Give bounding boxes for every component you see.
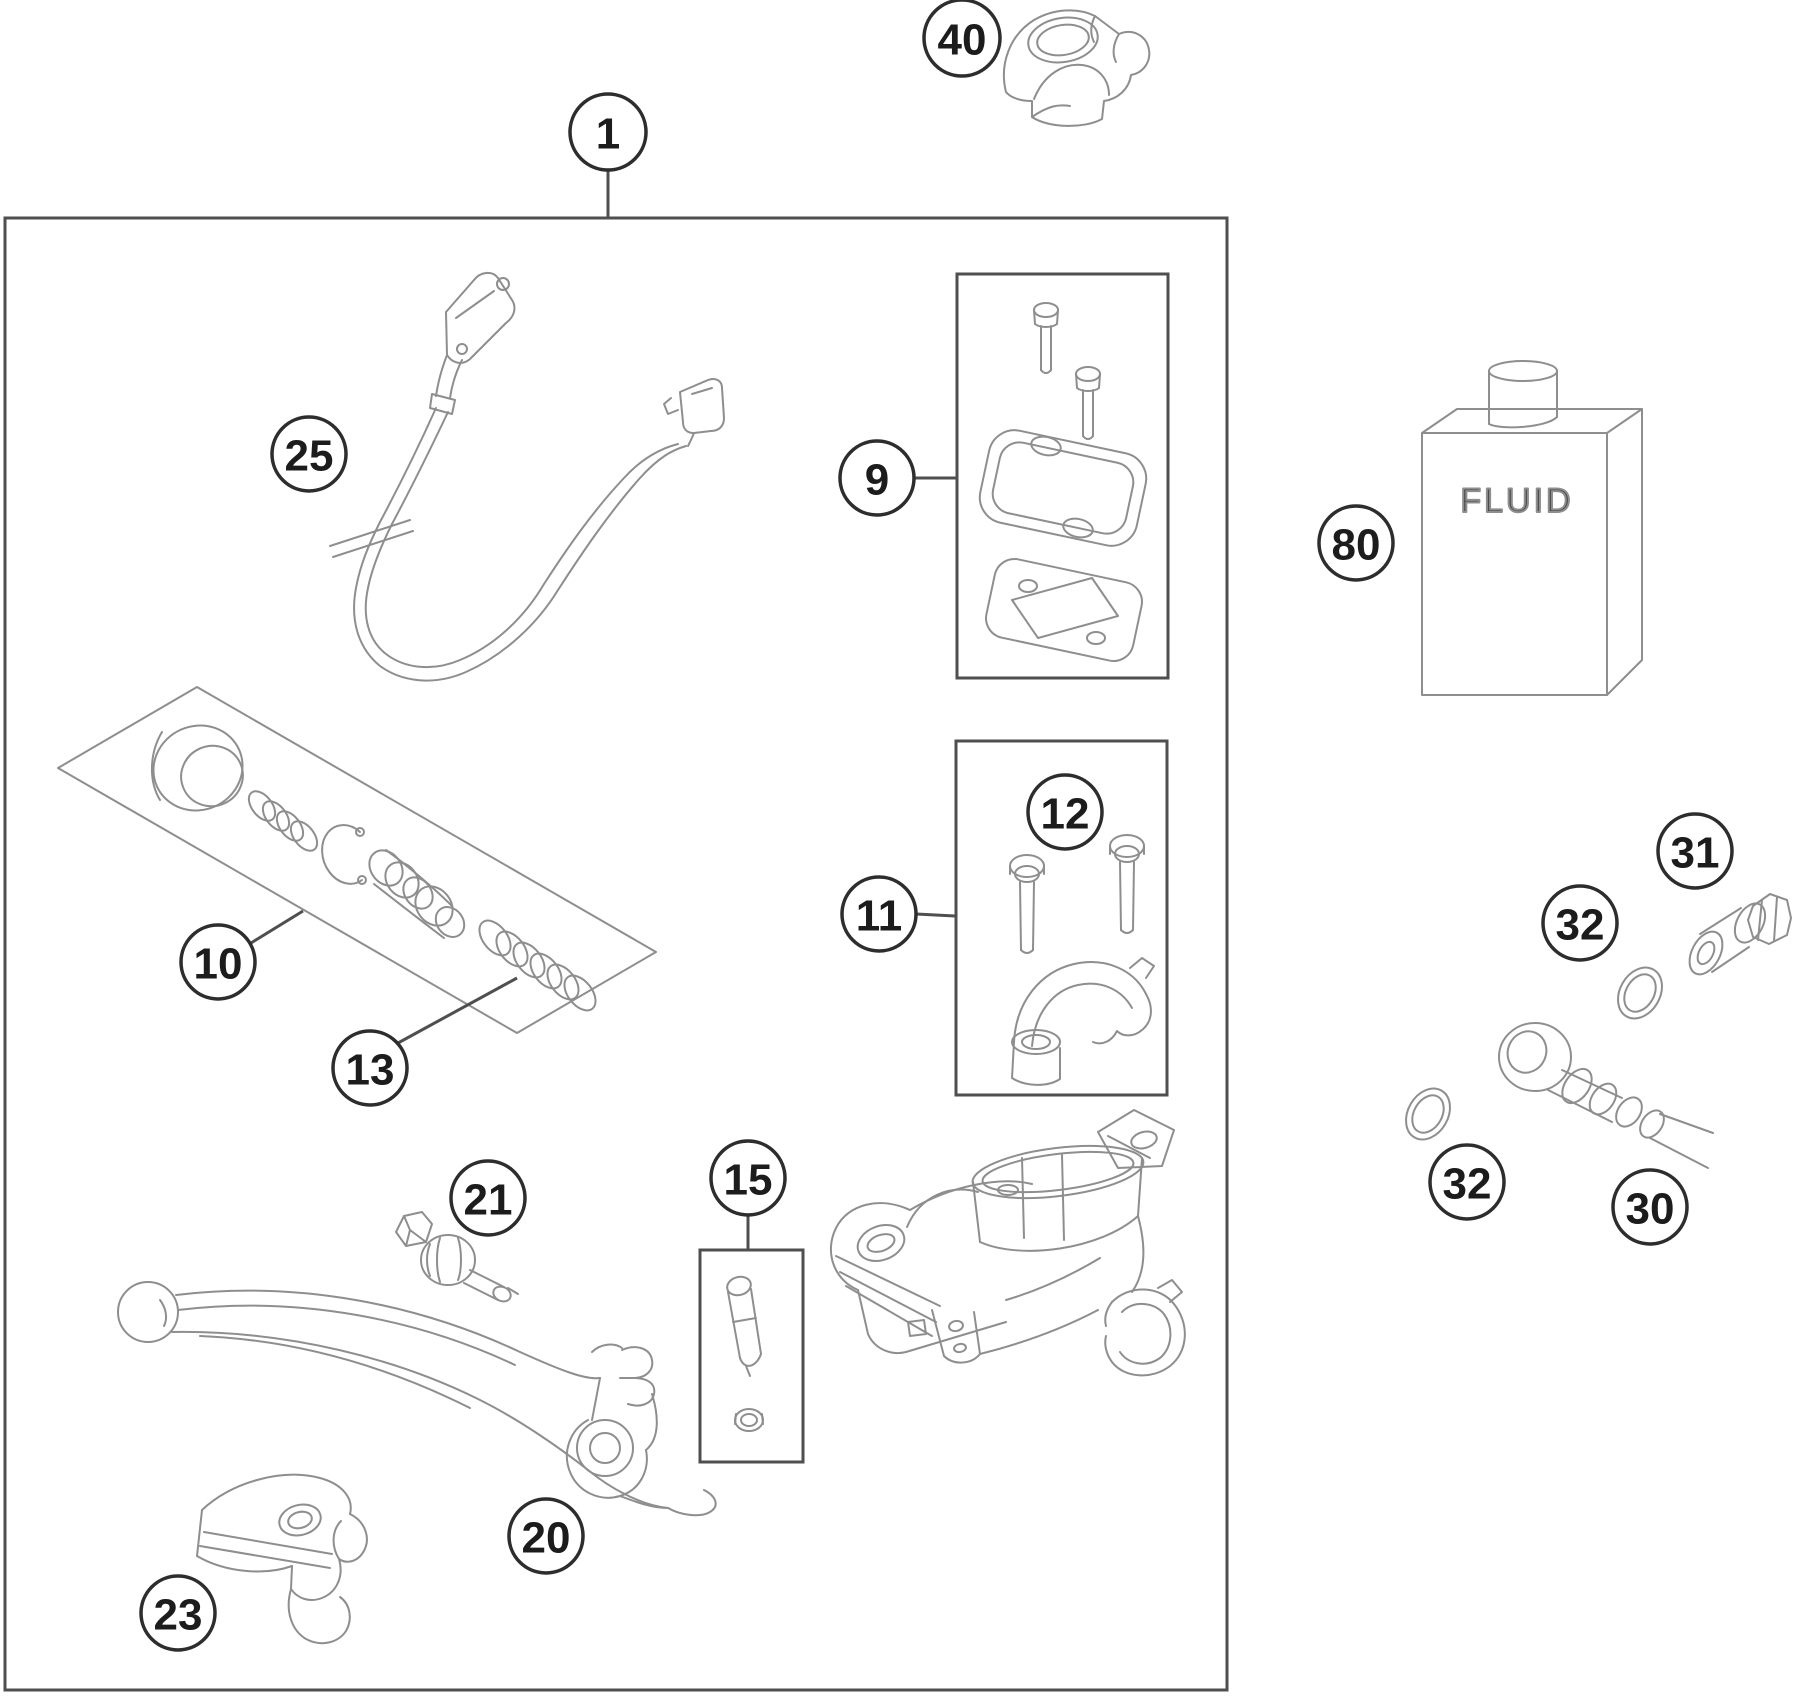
- callout-15: 15: [711, 1141, 785, 1250]
- callout-32b-number: 32: [1443, 1160, 1492, 1209]
- handlebar-clamp-part: [1004, 10, 1149, 126]
- callout-32a: 32: [1543, 886, 1617, 960]
- callout-21-number: 21: [464, 1176, 513, 1225]
- callout-1-number: 1: [596, 110, 620, 159]
- callout-11-number: 11: [856, 892, 903, 941]
- callout-40-number: 40: [938, 16, 987, 65]
- fluid-bottle: FLUID: [1422, 361, 1642, 695]
- callout-30: 30: [1613, 1170, 1687, 1244]
- callout-10-number: 10: [194, 940, 243, 989]
- switch-cable-part: [330, 273, 724, 681]
- callout-20: 20: [509, 1499, 583, 1573]
- exploded-parts-diagram: FLUID 14025980101311121521202331323230: [0, 0, 1793, 1700]
- callout-20-number: 20: [522, 1514, 571, 1563]
- callout-32b: 32: [1430, 1145, 1504, 1219]
- brake-hose-part: [1499, 1023, 1713, 1168]
- callout-10: 10: [181, 911, 303, 999]
- o-ring-lower: [1397, 1081, 1459, 1148]
- reservoir-cover-group: [975, 303, 1151, 665]
- callout-31: 31: [1658, 814, 1732, 888]
- group-box-9: [957, 274, 1168, 678]
- callout-25: 25: [272, 417, 346, 491]
- callout-31-number: 31: [1671, 829, 1720, 878]
- callout-10-leader-line: [251, 911, 303, 943]
- callout-11: 11: [842, 877, 955, 951]
- callout-12: 12: [1028, 775, 1102, 849]
- callout-9: 9: [840, 441, 956, 515]
- callout-12-number: 12: [1041, 790, 1090, 839]
- callout-23-number: 23: [154, 1591, 203, 1640]
- callout-11-leader-line: [916, 914, 955, 916]
- piston-repair-kit: [58, 687, 656, 1033]
- callout-13-leader-line: [398, 978, 517, 1043]
- callout-80-number: 80: [1332, 521, 1381, 570]
- callout-13-number: 13: [346, 1046, 395, 1095]
- master-cylinder-body: [831, 1110, 1185, 1375]
- callout-40: 40: [924, 0, 1000, 76]
- callout-32a-number: 32: [1556, 901, 1605, 950]
- callout-15-number: 15: [724, 1156, 773, 1205]
- banjo-bolt-part: [1683, 894, 1791, 980]
- clamp-kit-group: [1010, 835, 1154, 1085]
- callout-80: 80: [1319, 506, 1393, 580]
- callout-9-number: 9: [865, 456, 889, 505]
- callouts-layer: 14025980101311121521202331323230: [141, 0, 1732, 1650]
- fluid-label: FLUID: [1460, 482, 1573, 520]
- callout-30-number: 30: [1626, 1185, 1675, 1234]
- parts-diagram-page: FLUID 14025980101311121521202331323230: [0, 0, 1793, 1700]
- callout-21: 21: [451, 1161, 525, 1235]
- callout-23: 23: [141, 1576, 215, 1650]
- callout-25-number: 25: [285, 432, 334, 481]
- callout-1: 1: [570, 94, 646, 218]
- pin-kit-group: [725, 1274, 763, 1431]
- callout-13: 13: [333, 978, 517, 1105]
- brake-lever-part: [118, 1282, 716, 1515]
- lever-bracket-part: [197, 1475, 367, 1643]
- o-ring-upper: [1609, 960, 1671, 1027]
